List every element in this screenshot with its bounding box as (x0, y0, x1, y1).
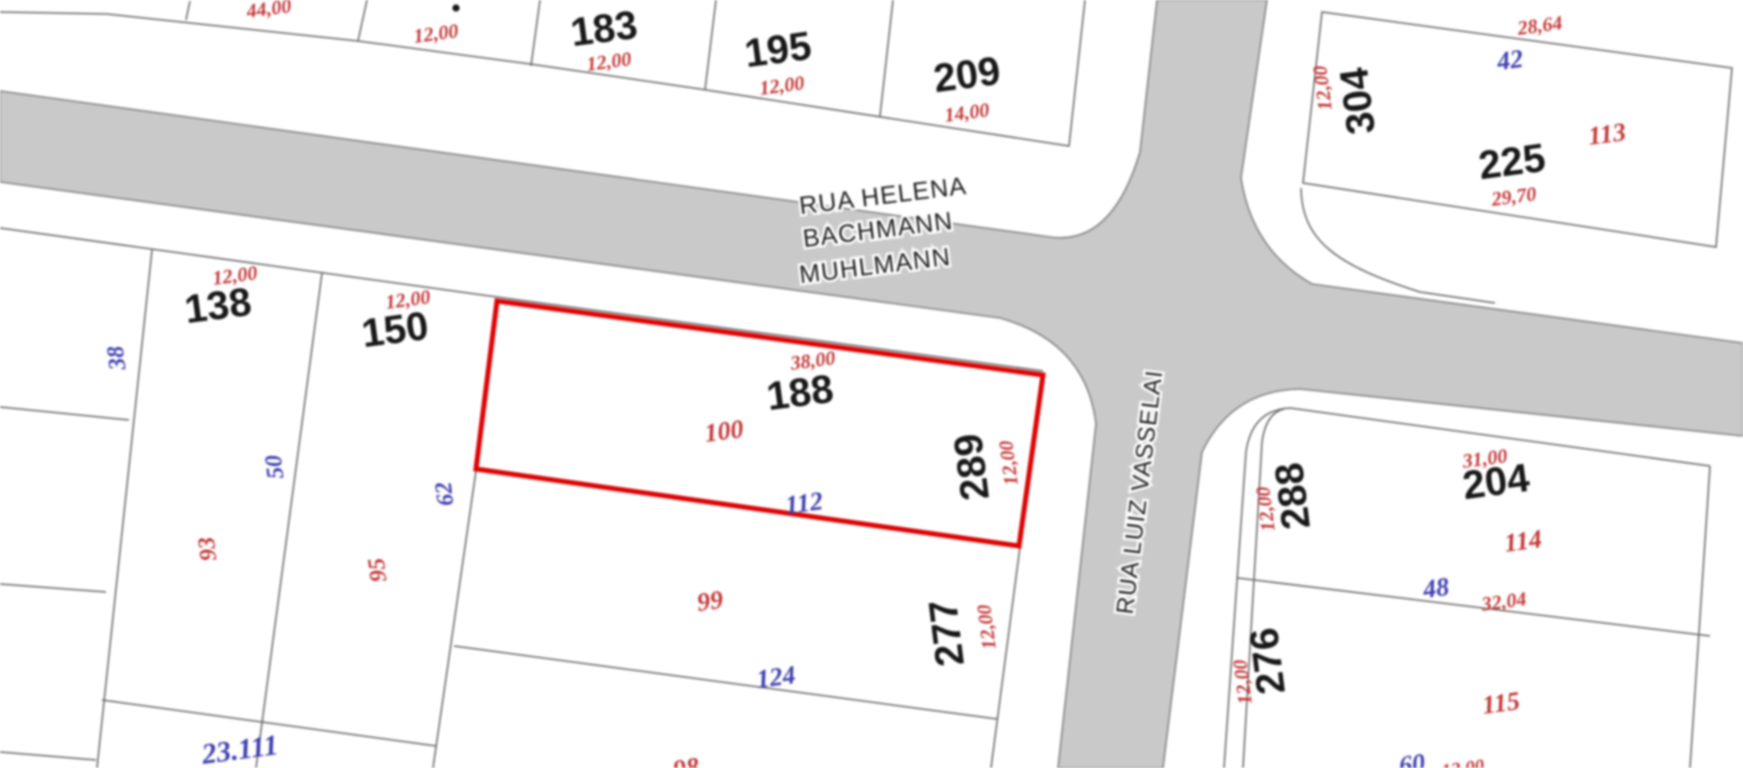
svg-text:124: 124 (755, 660, 797, 694)
svg-text:62: 62 (431, 481, 460, 508)
svg-text:304: 304 (1332, 64, 1384, 136)
svg-text:115: 115 (1480, 686, 1521, 720)
svg-text:225: 225 (1476, 136, 1548, 188)
svg-text:150: 150 (359, 304, 431, 356)
svg-text:204: 204 (1460, 456, 1533, 508)
svg-text:93: 93 (194, 536, 223, 563)
svg-text:195: 195 (742, 24, 814, 76)
svg-text:98: 98 (671, 752, 701, 768)
svg-text:209: 209 (931, 49, 1003, 101)
svg-text:48: 48 (1420, 572, 1451, 604)
svg-text:112: 112 (783, 486, 824, 520)
svg-text:95: 95 (364, 557, 393, 584)
svg-text:60: 60 (1397, 748, 1427, 768)
svg-text:289: 289 (946, 431, 998, 503)
svg-text:42: 42 (1494, 44, 1525, 76)
svg-text:113: 113 (1586, 117, 1627, 151)
svg-text:99: 99 (695, 585, 725, 617)
svg-text:138: 138 (182, 280, 254, 332)
svg-text:50: 50 (261, 454, 290, 481)
svg-text:38: 38 (103, 345, 132, 373)
svg-text:100: 100 (703, 414, 745, 448)
svg-text:114: 114 (1502, 524, 1543, 558)
svg-text:188: 188 (764, 367, 836, 419)
svg-text:277: 277 (921, 597, 973, 669)
